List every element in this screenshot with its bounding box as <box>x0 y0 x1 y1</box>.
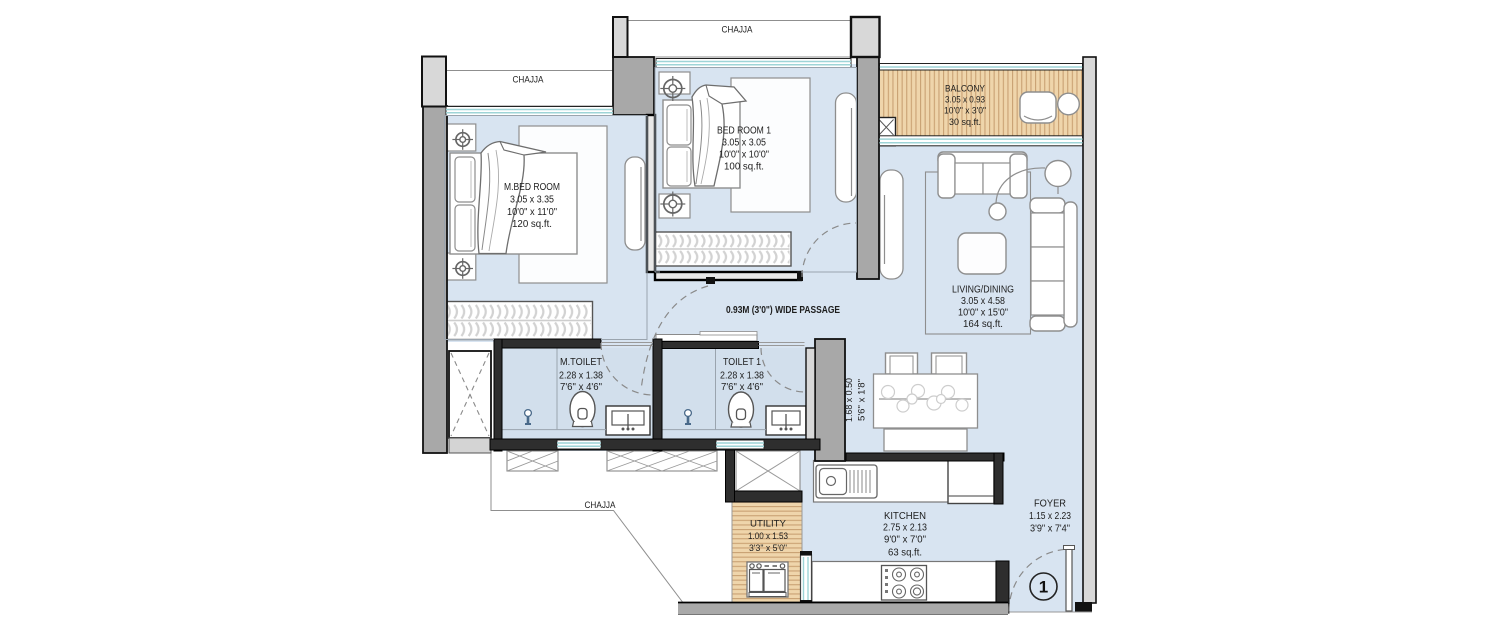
svg-text:1: 1 <box>1039 578 1048 597</box>
svg-text:UTILITY: UTILITY <box>750 519 786 529</box>
svg-text:10'0" x 11'0": 10'0" x 11'0" <box>507 207 557 218</box>
svg-text:7'6" x 4'6": 7'6" x 4'6" <box>560 382 603 393</box>
svg-text:LIVING/DINING: LIVING/DINING <box>952 285 1014 296</box>
svg-text:3.05 x 3.35: 3.05 x 3.35 <box>510 195 554 206</box>
svg-text:10'0" x 3'0": 10'0" x 3'0" <box>944 106 986 116</box>
svg-text:3'3" x 5'0": 3'3" x 5'0" <box>749 543 787 553</box>
svg-text:120 sq.ft.: 120 sq.ft. <box>512 219 552 230</box>
svg-text:CHAJJA: CHAJJA <box>722 25 754 35</box>
svg-text:3'9" x 7'4": 3'9" x 7'4" <box>1030 524 1070 535</box>
svg-text:BALCONY: BALCONY <box>945 84 985 94</box>
svg-text:63 sq.ft.: 63 sq.ft. <box>888 548 922 559</box>
svg-text:10'0" x 15'0": 10'0" x 15'0" <box>958 308 1008 319</box>
svg-text:30 sq.ft.: 30 sq.ft. <box>949 117 981 127</box>
svg-text:7'6" x 4'6": 7'6" x 4'6" <box>721 382 764 393</box>
svg-text:100 sq.ft.: 100 sq.ft. <box>724 162 764 173</box>
svg-text:1.00 x 1.53: 1.00 x 1.53 <box>748 531 788 541</box>
svg-text:10'0" x 10'0": 10'0" x 10'0" <box>719 150 769 161</box>
svg-text:TOILET 1: TOILET 1 <box>723 357 761 368</box>
svg-text:9'0" x 7'0": 9'0" x 7'0" <box>884 535 926 546</box>
svg-text:M.TOILET: M.TOILET <box>560 357 602 368</box>
svg-text:0.93M (3'0") WIDE PASSAGE: 0.93M (3'0") WIDE PASSAGE <box>726 305 840 316</box>
svg-text:5'6" x 1'8": 5'6" x 1'8" <box>857 379 867 421</box>
svg-text:2.28 x 1.38: 2.28 x 1.38 <box>720 371 764 382</box>
svg-text:164 sq.ft.: 164 sq.ft. <box>963 319 1003 330</box>
svg-text:3.05 x 4.58: 3.05 x 4.58 <box>961 296 1005 307</box>
svg-text:2.75 x 2.13: 2.75 x 2.13 <box>883 523 927 534</box>
svg-text:CHAJJA: CHAJJA <box>585 500 617 510</box>
svg-text:2.28 x 1.38: 2.28 x 1.38 <box>559 371 603 382</box>
svg-text:BED ROOM 1: BED ROOM 1 <box>717 126 771 137</box>
svg-text:KITCHEN: KITCHEN <box>884 511 926 522</box>
svg-text:1.15 x 2.23: 1.15 x 2.23 <box>1029 511 1071 522</box>
svg-text:3.05 x 3.05: 3.05 x 3.05 <box>722 138 766 149</box>
svg-text:1.68 x 0.50: 1.68 x 0.50 <box>844 378 854 422</box>
svg-text:FOYER: FOYER <box>1034 499 1066 510</box>
svg-text:3.05 x 0.93: 3.05 x 0.93 <box>945 95 985 105</box>
svg-text:M.BED ROOM: M.BED ROOM <box>504 182 560 193</box>
svg-text:CHAJJA: CHAJJA <box>513 75 545 85</box>
